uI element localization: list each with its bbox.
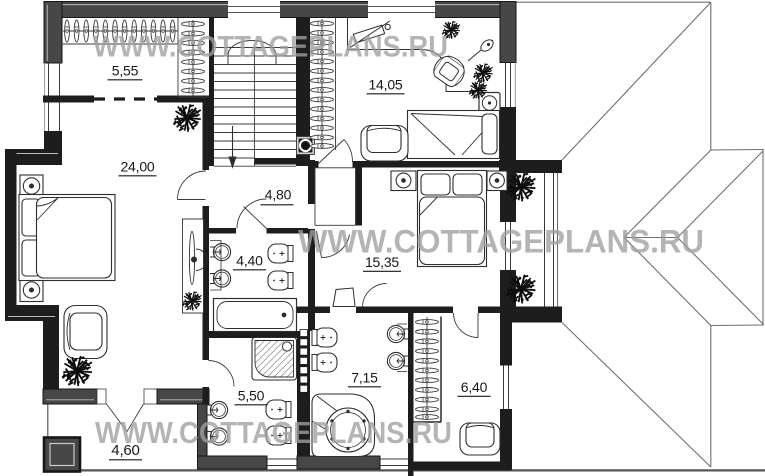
svg-text:4,80: 4,80	[265, 187, 292, 203]
svg-text:WWW.COTTAGEPLANS.RU: WWW.COTTAGEPLANS.RU	[298, 223, 704, 259]
svg-text:7,15: 7,15	[351, 370, 378, 386]
svg-text:WWW.COTTAGEPLANS.RU: WWW.COTTAGEPLANS.RU	[95, 415, 452, 450]
svg-text:WWW.COTTAGEPLANS.RU: WWW.COTTAGEPLANS.RU	[93, 31, 448, 64]
svg-text:14,05: 14,05	[368, 77, 402, 93]
svg-text:5,50: 5,50	[238, 388, 265, 404]
svg-text:4,40: 4,40	[236, 253, 263, 269]
svg-text:6,40: 6,40	[461, 379, 488, 395]
svg-text:5,55: 5,55	[112, 63, 139, 79]
svg-text:24,00: 24,00	[120, 159, 154, 175]
